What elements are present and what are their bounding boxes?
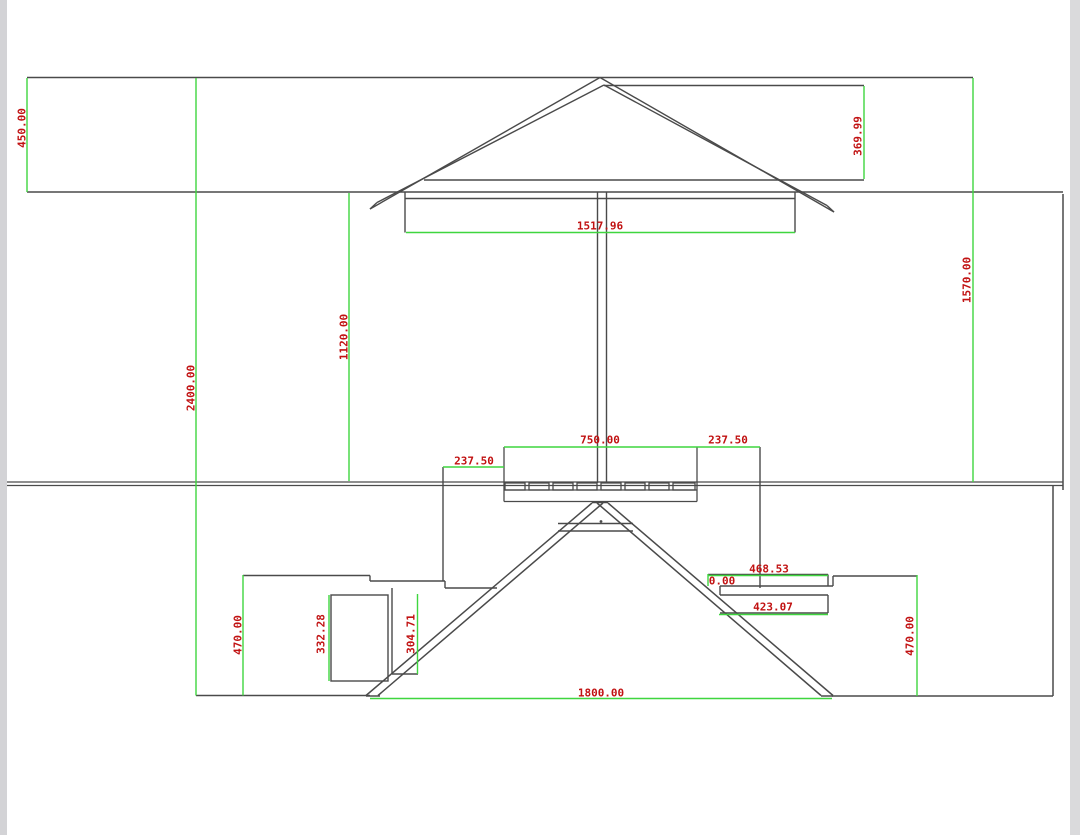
- dim-label-base-span: 1800.00: [578, 688, 624, 699]
- a-frame-legs: [366, 503, 833, 697]
- page-edge-left: [0, 0, 7, 835]
- tabletop: [504, 447, 697, 502]
- structure-lines: [0, 78, 1063, 486]
- dim-label-tabletop-overhang-left: 237.50: [454, 456, 494, 467]
- dim-label-seat-width-right: 468.53: [749, 564, 789, 575]
- dim-label-overall-height: 2400.00: [186, 365, 197, 411]
- right-bench: [708, 447, 917, 613]
- dim-label-tabletop-width: 750.00: [580, 435, 620, 446]
- dim-label-canopy-width: 1517.96: [577, 221, 623, 232]
- dim-label-canopy-edge-height: 369.99: [853, 116, 864, 156]
- page-edge-right: [1070, 0, 1080, 835]
- dim-label-umbrella-to-table-height: 1570.00: [962, 257, 973, 303]
- dimension-lines: [27, 78, 973, 699]
- dim-label-umbrella-overhang-height: 450.00: [17, 108, 28, 148]
- dim-label-seat-frame-width-right: 423.07: [753, 602, 793, 613]
- dim-label-canopy-to-table-height: 1120.00: [339, 314, 350, 360]
- drawing-canvas: 450.00 369.99 1517.96 1570.00 1120.00 24…: [0, 0, 1080, 835]
- cad-linework: [0, 0, 1080, 835]
- dim-label-tabletop-overhang-right: 237.50: [708, 435, 748, 446]
- dim-label-seat-height-right: 470.00: [905, 616, 916, 656]
- dim-label-seat-zero-offset: 0.00: [709, 576, 736, 587]
- dim-label-seat-brace-height: 304.71: [406, 614, 417, 654]
- pivot-dot: [600, 520, 603, 523]
- umbrella-outline: [370, 78, 864, 484]
- dim-label-seat-support-height: 332.28: [316, 614, 327, 654]
- left-bench: [243, 467, 497, 681]
- dim-label-seat-height-left: 470.00: [233, 615, 244, 655]
